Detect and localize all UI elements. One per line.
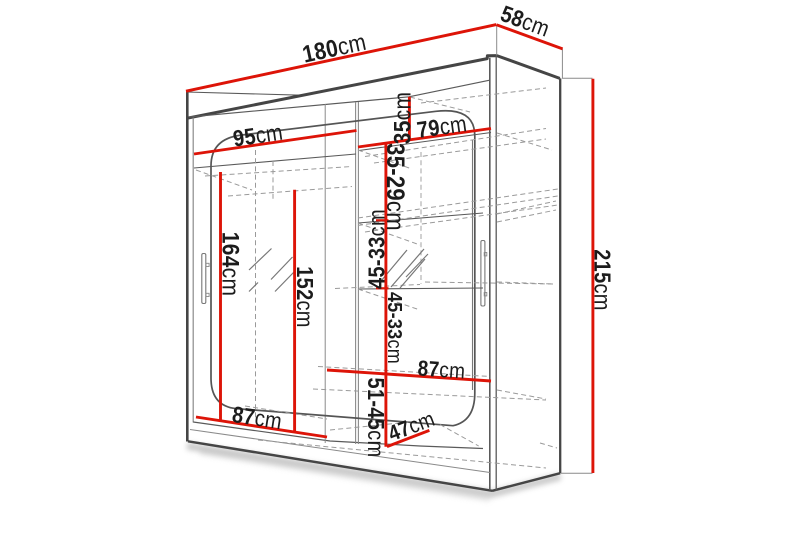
svg-text:215cm: 215cm [589, 249, 616, 311]
svg-text:51-45cm: 51-45cm [362, 378, 389, 458]
svg-text:164cm: 164cm [217, 232, 244, 296]
svg-text:87cm: 87cm [417, 356, 466, 384]
svg-text:45-33cm: 45-33cm [363, 209, 390, 289]
svg-text:152cm: 152cm [291, 266, 318, 328]
svg-text:35cm: 35cm [389, 92, 416, 145]
svg-text:45-33cm: 45-33cm [383, 292, 406, 364]
